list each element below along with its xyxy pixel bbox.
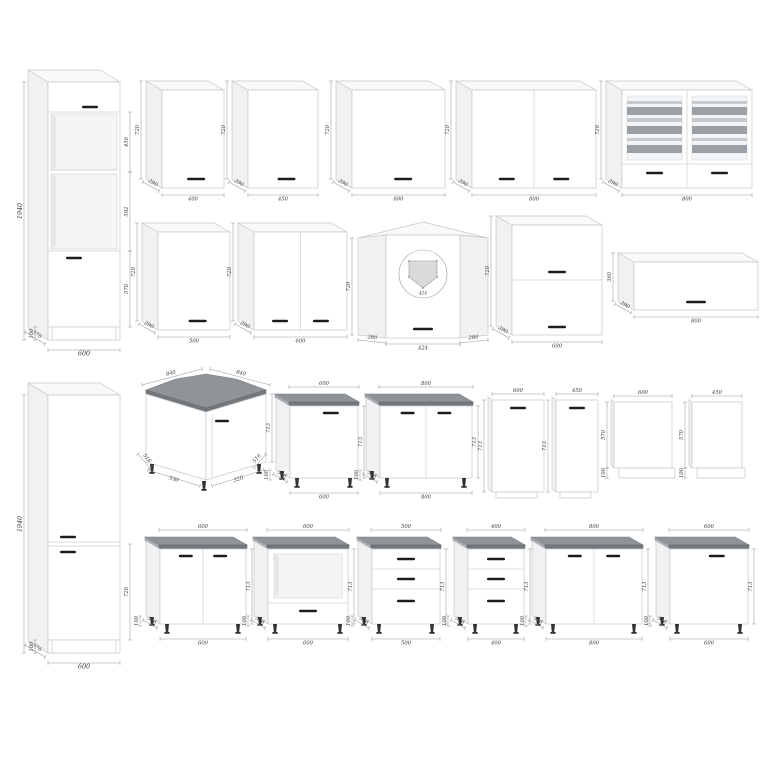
door-handle bbox=[313, 320, 329, 323]
door-handle bbox=[553, 178, 569, 181]
dim-label: 570 bbox=[124, 283, 130, 294]
dim-label: 800 bbox=[529, 196, 540, 202]
dim-label: 720 bbox=[595, 124, 601, 135]
door-handle bbox=[487, 578, 505, 581]
dim-label: 100 bbox=[520, 615, 526, 626]
door-handle bbox=[323, 412, 339, 415]
dim-label: 600 bbox=[552, 343, 563, 349]
dim-label: 450 bbox=[571, 388, 583, 394]
dim-label: 600 bbox=[638, 390, 649, 396]
base-corner-cabinet: 840840713516330320516 bbox=[136, 367, 274, 491]
dim-label: 280 bbox=[366, 334, 378, 341]
dim-label: 1940 bbox=[16, 203, 24, 219]
wall-cabinet-450: 720450290 bbox=[221, 81, 318, 202]
dim-label: 280 bbox=[467, 334, 479, 341]
dim-label: 713 bbox=[266, 422, 272, 433]
kitchen-cabinet-drawing-sheet: 1940450592570100576600720400290720450290… bbox=[0, 0, 768, 768]
door-handle bbox=[437, 412, 451, 415]
dim-label: 600 bbox=[319, 381, 330, 387]
dim-label: 800 bbox=[691, 318, 702, 324]
dim-label: 600 bbox=[78, 662, 90, 670]
dim-label: 424 bbox=[418, 291, 427, 296]
side-panel-450: 450570100 bbox=[679, 390, 745, 478]
door-handle bbox=[711, 172, 728, 175]
dim-label: 600 bbox=[704, 524, 715, 530]
door-handle bbox=[189, 320, 207, 323]
dim-label: 100 bbox=[354, 469, 360, 480]
wall-cabinet-500: 720500290 bbox=[131, 223, 230, 344]
door-handle bbox=[213, 555, 227, 558]
door-handle bbox=[179, 555, 193, 558]
dim-label: 450 bbox=[124, 136, 130, 148]
dim-label: 450 bbox=[711, 390, 723, 396]
dim-label: 720 bbox=[131, 266, 137, 277]
dim-label: 600 bbox=[303, 524, 314, 530]
dim-label: 100 bbox=[442, 615, 448, 626]
door-handle bbox=[215, 420, 229, 423]
wall-cabinet-600-two-door: 720600290 bbox=[227, 223, 347, 344]
dim-label: 800 bbox=[682, 196, 693, 202]
dim-label: 800 bbox=[421, 494, 432, 500]
door-handle bbox=[606, 555, 620, 558]
door-handle bbox=[187, 178, 205, 181]
tall-oven-housing: 1940450592570100576600 bbox=[16, 70, 132, 357]
dim-label: 600 bbox=[296, 338, 307, 344]
dim-label: 713 bbox=[358, 436, 364, 447]
dim-label: 720 bbox=[221, 124, 227, 135]
dim-label: 570 bbox=[601, 429, 607, 440]
kitchen-drawing-svg: 1940450592570100576600720400290720450290… bbox=[0, 0, 768, 768]
door-handle bbox=[397, 600, 415, 603]
door-handle bbox=[66, 257, 82, 260]
dim-label: 100 bbox=[346, 615, 352, 626]
dim-label: 100 bbox=[601, 467, 607, 478]
base-cabinet-600-one-door-b: 600713516100600 bbox=[644, 524, 756, 646]
dim-label: 713 bbox=[246, 581, 252, 592]
door-handle bbox=[413, 328, 433, 331]
dim-label: 713 bbox=[748, 581, 754, 592]
dim-label: 600 bbox=[704, 640, 715, 646]
door-handle bbox=[487, 558, 505, 561]
door-handle bbox=[82, 106, 98, 109]
dim-label: 600 bbox=[319, 494, 330, 500]
door-handle bbox=[510, 407, 526, 410]
dim-label: 600 bbox=[198, 640, 209, 646]
side-panel-600: 600570100 bbox=[601, 390, 675, 478]
door-handle bbox=[568, 555, 582, 558]
dim-label: 720 bbox=[325, 124, 331, 135]
door-handle bbox=[401, 412, 415, 415]
dim-label: 840 bbox=[166, 369, 178, 378]
dim-label: 570 bbox=[679, 429, 685, 440]
dim-label: 100 bbox=[679, 467, 685, 478]
dim-label: 720 bbox=[227, 266, 233, 277]
dim-label: 800 bbox=[589, 524, 600, 530]
dim-label: 400 bbox=[490, 640, 502, 646]
door-handle bbox=[272, 320, 288, 323]
base-drawer-cabinet-400: 400713516100400 bbox=[442, 524, 532, 646]
door-handle bbox=[487, 600, 505, 603]
door-handle bbox=[394, 178, 412, 181]
base-drawer-cabinet-500: 500713516100500 bbox=[346, 524, 448, 646]
door-handle bbox=[548, 326, 566, 329]
door-handle bbox=[686, 301, 706, 304]
dim-label: 100 bbox=[242, 615, 248, 626]
dim-label: 1940 bbox=[16, 516, 24, 532]
door-handle bbox=[397, 578, 415, 581]
dim-label: 713 bbox=[524, 581, 530, 592]
dim-label: 720 bbox=[346, 281, 352, 292]
dim-label: 500 bbox=[401, 640, 412, 646]
door-handle bbox=[60, 536, 76, 539]
door-handle bbox=[397, 558, 415, 561]
dim-label: 600 bbox=[198, 524, 209, 530]
dim-label: 800 bbox=[589, 640, 600, 646]
dim-label: 500 bbox=[401, 524, 412, 530]
dishwasher-panel-450: 450713 bbox=[542, 388, 598, 498]
dim-label: 713 bbox=[440, 581, 446, 592]
dim-label: 400 bbox=[490, 524, 502, 530]
wall-flap-cabinet-600: 720600290 bbox=[485, 216, 602, 349]
wall-glass-cabinet-800: 720800290 bbox=[595, 81, 752, 202]
dim-label: 600 bbox=[394, 196, 405, 202]
dim-label: 600 bbox=[303, 640, 314, 646]
wall-cabinet-600: 720600290 bbox=[325, 81, 445, 202]
dim-label: 713 bbox=[542, 440, 548, 451]
wall-corner-cabinet: 424720280424280 bbox=[346, 222, 488, 351]
dim-label: 600 bbox=[513, 388, 524, 394]
dim-label: 100 bbox=[644, 615, 650, 626]
door-handle bbox=[709, 555, 725, 558]
dim-label: 100 bbox=[264, 469, 270, 480]
dim-label: 424 bbox=[417, 345, 428, 351]
tall-cabinet-two-door: 1940720100576600 bbox=[16, 383, 132, 670]
dim-label: 713 bbox=[348, 581, 354, 592]
dim-label: 840 bbox=[235, 369, 247, 378]
dim-label: 592 bbox=[124, 207, 130, 217]
wall-cabinet-400: 720400290 bbox=[135, 81, 224, 202]
dim-label: 713 bbox=[642, 581, 648, 592]
catalog-canvas: 1940450592570100576600720400290720450290… bbox=[0, 0, 768, 768]
dim-label: 713 bbox=[478, 440, 484, 451]
door-handle bbox=[646, 172, 663, 175]
dishwasher-panel-600: 600713 bbox=[478, 388, 544, 498]
door-handle bbox=[548, 271, 566, 274]
base-cabinet-600-two-door: 600713516100600 bbox=[134, 524, 254, 646]
door-handle bbox=[278, 178, 296, 181]
base-cabinet-600-one-door: 600713516100600 bbox=[264, 381, 366, 500]
dim-label: 720 bbox=[445, 124, 451, 135]
dim-label: 800 bbox=[421, 381, 432, 387]
wall-flap-cabinet-800: 360800290 bbox=[607, 253, 758, 324]
dim-label: 500 bbox=[189, 338, 200, 344]
dim-label: 720 bbox=[485, 265, 491, 276]
door-handle bbox=[569, 407, 585, 410]
dim-label: 330 bbox=[168, 475, 180, 484]
door-handle bbox=[499, 178, 515, 181]
dim-label: 720 bbox=[124, 586, 130, 597]
base-oven-housing-600: 600713516100600 bbox=[242, 524, 356, 646]
dim-label: 360 bbox=[607, 271, 613, 282]
wall-cabinet-800: 720800290 bbox=[445, 81, 596, 202]
dim-label: 100 bbox=[134, 615, 140, 626]
door-handle bbox=[60, 551, 76, 554]
base-cabinet-800-two-door: 800713516100800 bbox=[354, 381, 480, 500]
base-cabinet-800-two-door-b: 800713516100800 bbox=[520, 524, 650, 646]
dim-label: 450 bbox=[277, 196, 289, 202]
door-handle bbox=[299, 610, 317, 613]
dim-label: 400 bbox=[187, 196, 199, 202]
dim-label: 600 bbox=[78, 349, 90, 357]
dim-label: 720 bbox=[135, 124, 141, 135]
